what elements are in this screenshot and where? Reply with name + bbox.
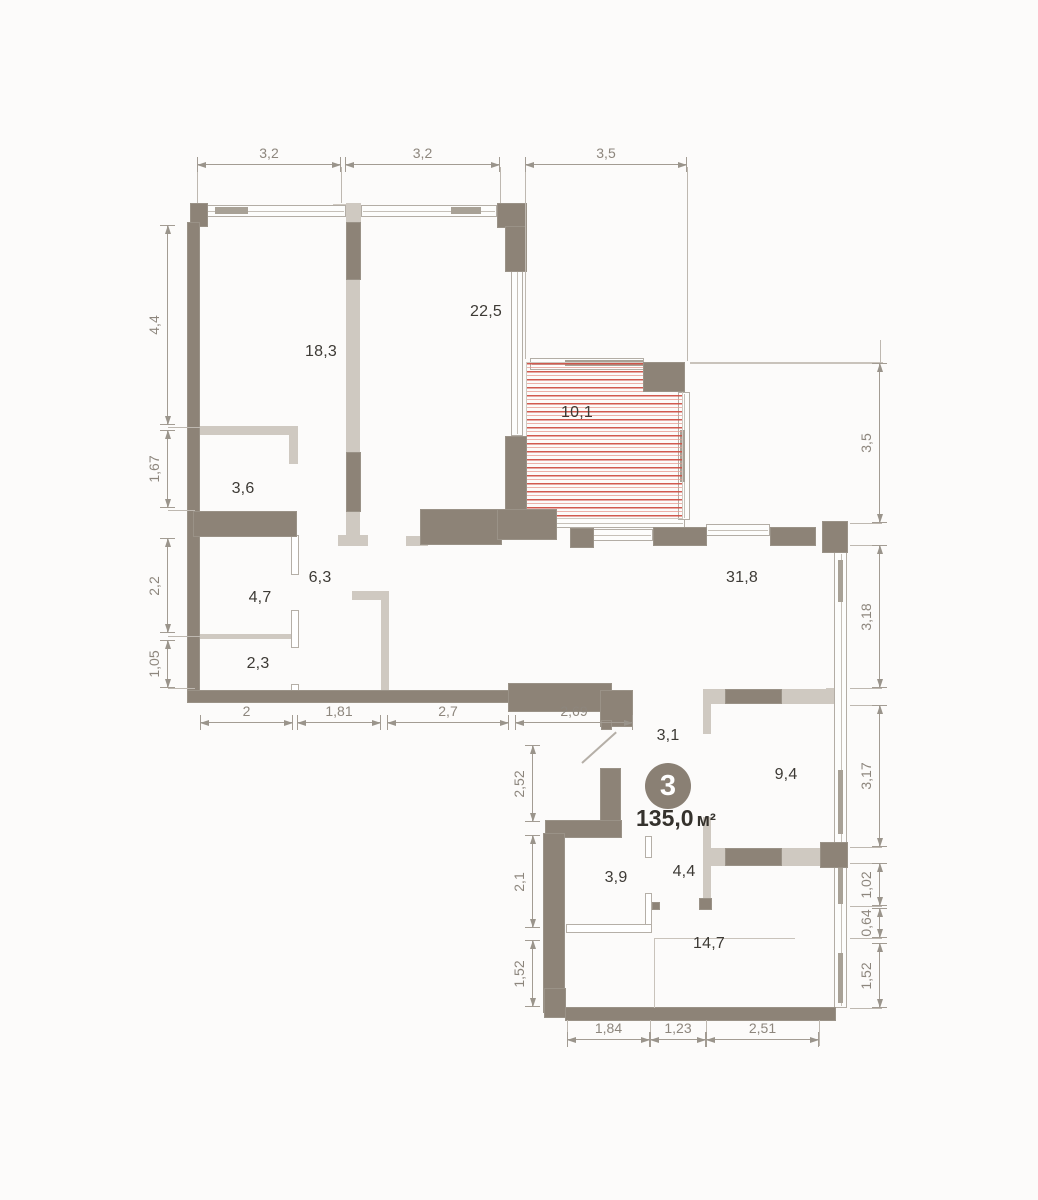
window	[511, 268, 523, 436]
dimension-arrow	[491, 162, 500, 168]
dimension-arrow	[530, 813, 536, 822]
dimension-line	[167, 225, 168, 425]
dimension-arrow	[165, 416, 171, 425]
room-area-label: 2,3	[247, 655, 270, 673]
dimension-extension-line	[850, 523, 882, 524]
dimension-horizontal: 1,23	[650, 1019, 706, 1047]
wall-dark	[820, 842, 848, 868]
dimension-label: 1,81	[325, 703, 352, 719]
window-sill	[838, 770, 843, 834]
dimension-arrow	[530, 835, 536, 844]
dimension-vertical: 1,02	[860, 863, 888, 906]
total-area-label: 135,0м²	[636, 805, 716, 832]
dimension-extension-line	[850, 847, 882, 848]
dimension-extension-line	[500, 167, 501, 203]
room-area-label: 3,9	[605, 869, 628, 887]
dimension-arrow	[877, 705, 883, 714]
dimension-arrow	[197, 162, 206, 168]
dimension-arrow	[345, 162, 354, 168]
window	[706, 524, 770, 536]
partition-wall	[566, 924, 652, 933]
wall-dark	[187, 222, 200, 692]
dimension-arrow	[641, 1037, 650, 1043]
dimension-vertical: 3,17	[860, 705, 888, 847]
dimension-extension-line	[850, 906, 882, 907]
dimension-vertical: 1,67	[148, 430, 176, 508]
dimension-arrow	[525, 162, 534, 168]
room-area-label: 31,8	[726, 569, 758, 587]
dimension-vertical: 1,05	[148, 640, 176, 688]
dimension-line	[515, 722, 633, 723]
dimension-horizontal: 2,7	[387, 702, 509, 730]
wall-dark	[193, 511, 297, 537]
dimension-line	[525, 164, 687, 165]
wall-dark	[346, 222, 361, 280]
dimension-arrow	[877, 514, 883, 523]
dimension-label: 1,05	[146, 650, 162, 677]
window-sill	[838, 560, 843, 602]
wall-dark	[497, 509, 557, 540]
wall-dark	[544, 988, 566, 1018]
dimension-line	[532, 835, 533, 928]
wall-dark	[346, 452, 361, 512]
dimension-vertical: 2,2	[148, 538, 176, 633]
dimension-vertical: 0,64	[860, 908, 888, 938]
wall-light	[381, 591, 389, 691]
unit-number-badge: 3	[645, 763, 691, 809]
room-area-label: 9,4	[775, 766, 798, 784]
dimension-vertical: 2,52	[513, 745, 541, 822]
dimension-arrow	[530, 998, 536, 1007]
wall-dark	[420, 509, 502, 545]
dimension-label: 2,69	[560, 703, 587, 719]
partition-wall	[291, 535, 299, 575]
dimension-extension-line	[168, 510, 195, 511]
dimension-line	[167, 430, 168, 508]
window-sill	[838, 953, 843, 1003]
window-sill	[215, 207, 248, 214]
dimension-label: 3,2	[413, 145, 432, 161]
total-area-value: 135,0	[636, 805, 694, 831]
room-area-label: 10,1	[561, 404, 593, 422]
wall-dark	[643, 362, 685, 392]
dimension-label: 3,2	[259, 145, 278, 161]
dimension-vertical: 4,4	[148, 225, 176, 425]
partition-wall	[645, 836, 652, 858]
room-area-label: 14,7	[693, 935, 725, 953]
dimension-vertical: 2,1	[513, 835, 541, 928]
dimension-extension-line	[850, 688, 882, 689]
wall-dark	[822, 521, 848, 553]
dimension-extension-line	[525, 167, 526, 359]
dimension-arrow	[387, 720, 396, 726]
wall-dark	[725, 848, 782, 866]
dimension-label: 2,52	[511, 770, 527, 797]
terrace-edge-line	[690, 362, 883, 364]
dimension-arrow	[165, 538, 171, 547]
unit-number: 3	[660, 770, 676, 803]
wall-dark	[570, 528, 594, 548]
dimension-arrow	[165, 430, 171, 439]
dimension-line	[879, 705, 880, 847]
dimension-horizontal: 1,81	[297, 702, 381, 730]
dimension-line	[879, 363, 880, 523]
dimension-arrow	[500, 720, 509, 726]
dimension-arrow	[332, 162, 341, 168]
dimension-arrow	[877, 838, 883, 847]
wall-dark	[652, 902, 660, 910]
wall-light	[346, 203, 361, 222]
dimension-arrow	[200, 720, 209, 726]
dimension-arrow	[678, 162, 687, 168]
wall-dark	[770, 527, 816, 546]
dimension-arrow	[650, 1037, 659, 1043]
wall-dark	[699, 898, 712, 910]
dimension-label: 3,18	[858, 603, 874, 630]
dimension-label: 1,52	[858, 962, 874, 989]
room-area-label: 3,6	[232, 480, 255, 498]
dimension-arrow	[530, 919, 536, 928]
room-area-label: 4,7	[249, 589, 272, 607]
wall-light	[346, 280, 360, 452]
dimension-label: 4,4	[146, 315, 162, 334]
dimension-arrow	[165, 624, 171, 633]
dimension-arrow	[297, 720, 306, 726]
room-area-label: 22,5	[470, 303, 502, 321]
dimension-label: 2,1	[511, 872, 527, 891]
dimension-extension-line	[197, 167, 198, 203]
wall-light	[703, 689, 711, 734]
dimension-arrow	[877, 863, 883, 872]
wall-light	[200, 426, 297, 435]
wall-light	[289, 426, 298, 464]
dimension-arrow	[810, 1037, 819, 1043]
dimension-label: 1,67	[146, 455, 162, 482]
dimension-label: 0,64	[858, 909, 874, 936]
dimension-label: 3,17	[858, 762, 874, 789]
dimension-line	[345, 164, 500, 165]
dimension-label: 2,51	[749, 1020, 776, 1036]
wall-light	[346, 512, 360, 536]
dimension-arrow	[877, 897, 883, 906]
wall-dark	[725, 689, 782, 704]
dimension-vertical: 1,52	[513, 940, 541, 1007]
wall-dark	[505, 226, 527, 272]
dimension-line	[167, 538, 168, 633]
floor-plan: 18,322,510,13,66,34,72,331,83,19,43,94,4…	[0, 0, 1038, 1200]
dimension-vertical: 3,18	[860, 545, 888, 688]
dimension-line	[532, 745, 533, 822]
dimension-vertical: 1,52	[860, 943, 888, 1008]
room-area-label: 18,3	[305, 343, 337, 361]
wall-light	[338, 535, 368, 546]
dimension-arrow	[877, 679, 883, 688]
wall-light	[200, 634, 291, 639]
dimension-extension-line	[341, 167, 342, 203]
dimension-extension-line	[168, 688, 195, 689]
dimension-horizontal: 2	[200, 702, 293, 730]
dimension-horizontal: 3,2	[197, 144, 341, 172]
dimension-line	[532, 940, 533, 1007]
dimension-arrow	[284, 720, 293, 726]
dimension-arrow	[706, 1037, 715, 1043]
dimension-horizontal: 3,5	[525, 144, 687, 172]
dimension-horizontal: 1,84	[567, 1019, 650, 1047]
wall-dark	[653, 527, 707, 546]
wall-dark	[497, 203, 527, 228]
dimension-arrow	[697, 1037, 706, 1043]
dimension-arrow	[877, 943, 883, 952]
room-area-label: 6,3	[309, 569, 332, 587]
dimension-extension-line	[850, 1008, 882, 1009]
dimension-arrow	[877, 999, 883, 1008]
dimension-arrow	[567, 1037, 576, 1043]
total-area-unit: м²	[697, 810, 716, 830]
dimension-arrow	[165, 225, 171, 234]
dimension-label: 3,5	[858, 433, 874, 452]
dimension-label: 1,52	[511, 960, 527, 987]
dimension-arrow	[515, 720, 524, 726]
dimension-label: 2,7	[438, 703, 457, 719]
window	[592, 529, 653, 541]
room-area-label: 4,4	[673, 863, 696, 881]
dimension-label: 2	[243, 703, 251, 719]
dimension-extension-line	[687, 167, 688, 361]
dimension-label: 2,2	[146, 576, 162, 595]
dimension-label: 1,23	[664, 1020, 691, 1036]
dimension-arrow	[877, 545, 883, 554]
terrace-edge-line	[654, 938, 655, 1008]
dimension-line	[567, 1039, 650, 1040]
dimension-arrow	[165, 679, 171, 688]
room-area-label: 3,1	[657, 727, 680, 745]
dimension-arrow	[877, 908, 883, 917]
dimension-arrow	[372, 720, 381, 726]
dimension-horizontal: 3,2	[345, 144, 500, 172]
dimension-vertical: 3,5	[860, 363, 888, 523]
dimension-line	[200, 722, 293, 723]
dimension-line	[297, 722, 381, 723]
dimension-extension-line	[168, 427, 200, 428]
dimension-line	[197, 164, 341, 165]
dimension-arrow	[530, 745, 536, 754]
wall-dark	[543, 833, 565, 1013]
window-sill	[451, 207, 481, 214]
dimension-arrow	[877, 363, 883, 372]
dimension-arrow	[530, 940, 536, 949]
dimension-line	[879, 545, 880, 688]
entry-door-swing	[581, 731, 617, 763]
dimension-arrow	[165, 640, 171, 649]
dimension-horizontal: 2,69	[515, 702, 633, 730]
window-sill	[838, 868, 843, 904]
dimension-line	[387, 722, 509, 723]
dimension-line	[706, 1039, 819, 1040]
dimension-label: 3,5	[596, 145, 615, 161]
dimension-arrow	[165, 499, 171, 508]
dimension-extension-line	[850, 938, 882, 939]
partition-wall	[291, 610, 299, 648]
dimension-extension-line	[819, 1020, 820, 1046]
dimension-label: 1,02	[858, 871, 874, 898]
dimension-horizontal: 2,51	[706, 1019, 819, 1047]
dimension-extension-line	[168, 636, 200, 637]
dimension-extension-line	[880, 340, 881, 363]
dimension-label: 1,84	[595, 1020, 622, 1036]
dimension-arrow	[624, 720, 633, 726]
dimension-arrow	[877, 929, 883, 938]
